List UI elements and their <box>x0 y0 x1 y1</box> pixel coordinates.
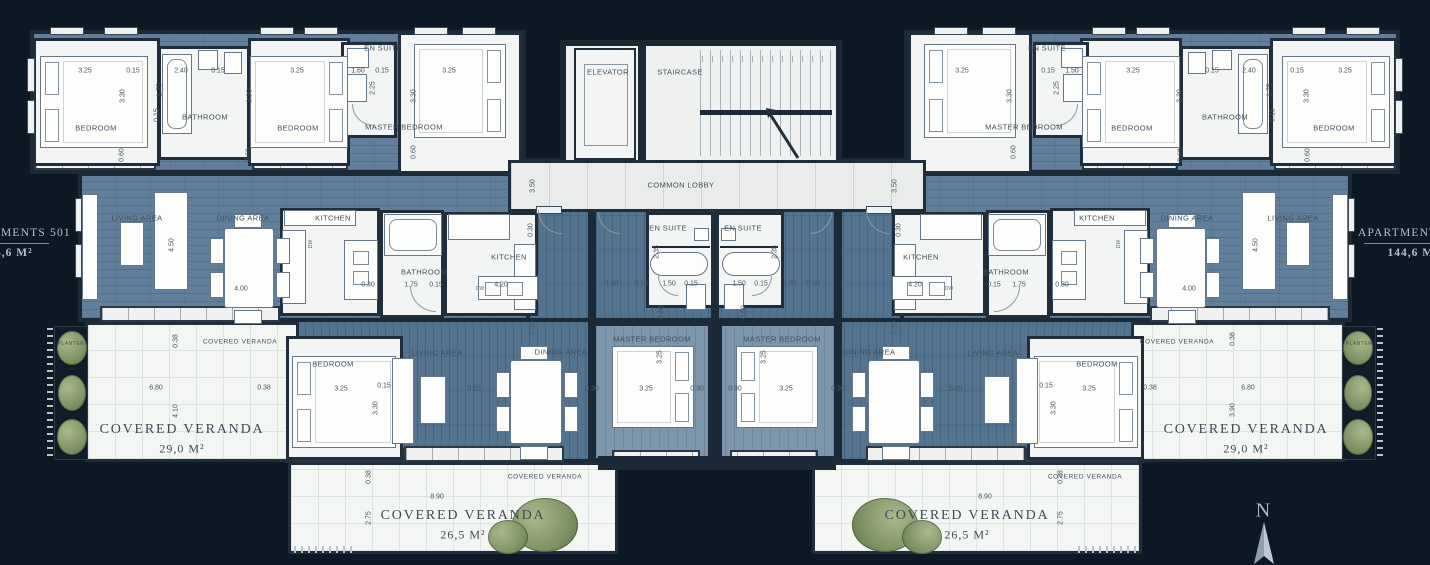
dim-label: 0.30 <box>528 223 535 237</box>
apartment-name: APARTMENTS 501 <box>0 227 55 239</box>
room-label: KITCHEN <box>315 214 351 223</box>
room-label: LIVING AREA <box>111 214 162 223</box>
dim-label: 0.30 <box>831 386 845 393</box>
room-label: MASTER BEDROOM <box>743 335 821 344</box>
apartment-label-right: APARTMENTS 501 144,6 M² <box>1358 227 1430 259</box>
dim-label: 0.60 <box>119 148 126 162</box>
room-label: COVERED VERANDA <box>1140 339 1214 346</box>
area-label: 29,0 M² <box>1223 442 1268 457</box>
dim-label: 2.25 <box>1054 81 1061 95</box>
dim-label: 1.50 <box>732 281 746 288</box>
dim-label: 5.85 <box>949 386 963 393</box>
dim-label: 0.30 <box>585 386 599 393</box>
dim-label: 3.25 <box>779 386 793 393</box>
dim-label: 2.35 <box>654 245 661 259</box>
appliance-label: DW <box>476 286 484 292</box>
dim-label: 0.38 <box>366 470 373 484</box>
veranda-title: COVERED VERANDA <box>885 508 1050 524</box>
dim-label: 6.80 <box>1241 385 1255 392</box>
room-label: BEDROOM <box>277 124 319 133</box>
dim-label: 3.25 <box>657 350 664 364</box>
dim-label: 2.40 <box>174 68 188 75</box>
north-label: N <box>1256 500 1270 523</box>
appliance-label: DW <box>1116 240 1122 248</box>
dim-label: 1.80 <box>783 281 797 288</box>
dim-label: 0.15 <box>377 383 391 390</box>
dim-label: 3.25 <box>639 386 653 393</box>
dim-label: 3.30 <box>247 89 254 103</box>
room-label: DINING AREA <box>535 348 588 357</box>
room-label: KITCHEN <box>1079 214 1115 223</box>
dim-label: 0.15 <box>1039 383 1053 390</box>
dim-label: 0.15 <box>154 108 161 122</box>
room-label: EN SUITE <box>1028 44 1066 53</box>
dim-label: 3.25 <box>290 68 304 75</box>
dim-label: 0.30 <box>690 386 704 393</box>
dim-label: 0.15 <box>375 68 389 75</box>
apartment-area: 144,6 M² <box>1358 247 1430 259</box>
room-label: LIVING AREA <box>1267 214 1318 223</box>
dim-label: 1.50 <box>662 281 676 288</box>
room-label: MASTER BEDROOM <box>613 335 691 344</box>
planter-label: PLANTER <box>1346 341 1373 347</box>
room-label: ELEVATOR <box>587 68 629 77</box>
room-label: BEDROOM <box>1076 360 1118 369</box>
dim-label: 3.30 <box>120 89 127 103</box>
dim-label: 1.75 <box>157 83 164 97</box>
dim-label: 4.00 <box>234 286 248 293</box>
room-label: EN SUITE <box>724 224 762 233</box>
dim-label: 4.20 <box>494 282 508 289</box>
dim-label: 3.30 <box>1304 89 1311 103</box>
room-label: BATHROOM <box>983 268 1029 277</box>
dim-label: 0.15 <box>987 282 1001 289</box>
room-label: MASTER BEDROOM <box>985 123 1063 132</box>
veranda-title: COVERED VERANDA <box>100 422 265 438</box>
dim-label: 3.25 <box>761 350 768 364</box>
dim-label: 3.30 <box>1007 89 1014 103</box>
room-label: LIVING AREA <box>967 349 1018 358</box>
dim-label: 4.20 <box>908 282 922 289</box>
divider-line <box>0 243 49 244</box>
room-label: COVERED VERANDA <box>203 339 277 346</box>
dim-label: 0.15 <box>1041 68 1055 75</box>
area-label: 26,5 M² <box>944 528 989 543</box>
apartment-name: APARTMENTS 501 <box>1358 227 1430 239</box>
dim-label: 0.38 <box>173 334 180 348</box>
dim-label: 1.60 <box>605 281 619 288</box>
dim-label: 0.30 <box>1055 282 1069 289</box>
room-label: BEDROOM <box>312 360 354 369</box>
dim-label: 0.38 <box>1058 470 1065 484</box>
room-label: DINING AREA <box>217 214 270 223</box>
room-label: LIVING AREA <box>411 349 462 358</box>
veranda-title: COVERED VERANDA <box>1164 422 1329 438</box>
dim-label: 4.50 <box>1253 238 1260 252</box>
dim-label: 0.15 <box>211 68 225 75</box>
room-label: COMMON LOBBY <box>648 181 715 190</box>
dim-label: 3.50 <box>892 179 899 193</box>
dim-label: 1.75 <box>404 282 418 289</box>
room-label: KITCHEN <box>903 253 939 262</box>
dim-label: 2.35 <box>772 245 779 259</box>
room-label: BEDROOM <box>1111 124 1153 133</box>
dim-label: 0.38 <box>1143 385 1157 392</box>
dim-label: 0.60 <box>246 148 253 162</box>
dim-label: 3.30 <box>1177 89 1184 103</box>
dim-label: 1.50 <box>1065 68 1079 75</box>
dim-label: 3.30 <box>1051 401 1058 415</box>
dim-label: 2.75 <box>1058 511 1065 525</box>
room-label: KITCHEN <box>491 253 527 262</box>
dim-label: 8.90 <box>978 494 992 501</box>
dim-label: 3.25 <box>1126 68 1140 75</box>
room-label: DINING AREA <box>1161 214 1214 223</box>
dim-label: 0.60 <box>1178 148 1185 162</box>
area-label: 26,5 M² <box>440 528 485 543</box>
room-label: EN SUITE <box>649 224 687 233</box>
dim-label: 4.10 <box>173 404 180 418</box>
dim-label: 8.90 <box>430 494 444 501</box>
room-label: BATHROOM <box>182 113 228 122</box>
room-label: MASTER BEDROOM <box>365 123 443 132</box>
apartment-area: 144,6 M² <box>0 247 55 259</box>
dim-label: 2.75 <box>366 511 373 525</box>
dim-label: 3.25 <box>1338 68 1352 75</box>
dim-label: 0.15 <box>634 281 648 288</box>
room-label: COVERED VERANDA <box>508 474 582 481</box>
dim-label: 3.25 <box>334 386 348 393</box>
dim-label: 0.15 <box>1205 68 1219 75</box>
dim-label: 3.50 <box>530 179 537 193</box>
dim-label: 2.40 <box>1242 68 1256 75</box>
dim-label: 3.25 <box>442 68 456 75</box>
dim-label: 0.15 <box>1290 68 1304 75</box>
dim-label: 0.30 <box>806 281 820 288</box>
dim-label: 2.25 <box>370 81 377 95</box>
dim-label: 3.30 <box>373 401 380 415</box>
divider-line <box>1364 243 1430 244</box>
dim-label: 0.38 <box>257 385 271 392</box>
appliance-label: DW <box>945 286 953 292</box>
dim-label: 0.15 <box>1270 108 1277 122</box>
area-label: 29,0 M² <box>159 442 204 457</box>
dim-label: 4.50 <box>169 238 176 252</box>
annotation-layer: 3.250.152.400.153.251.600.153.251.753.30… <box>0 0 1430 565</box>
dim-label: 6.80 <box>149 385 163 392</box>
appliance-label: DW <box>308 240 314 248</box>
dim-label: 0.15 <box>126 68 140 75</box>
dim-label: 0.38 <box>1230 332 1237 346</box>
dim-label: 5.85 <box>467 386 481 393</box>
dim-label: 0.60 <box>1305 148 1312 162</box>
dim-label: 0.60 <box>741 305 748 319</box>
dim-label: 7.20 <box>530 321 537 335</box>
dim-label: 0.60 <box>659 305 666 319</box>
room-label: BEDROOM <box>1313 124 1355 133</box>
dim-label: 4.00 <box>1182 286 1196 293</box>
room-label: STAIRCASE <box>657 68 703 77</box>
dim-label: 0.30 <box>728 386 742 393</box>
veranda-title: COVERED VERANDA <box>381 508 546 524</box>
room-label: BEDROOM <box>75 124 117 133</box>
dim-label: 1.75 <box>1012 282 1026 289</box>
room-label: BATHROOM <box>401 268 447 277</box>
room-label: EN SUITE <box>364 44 402 53</box>
north-arrow-icon <box>1248 522 1280 565</box>
dim-label: 7.20 <box>892 321 899 335</box>
room-label: BATHROOM <box>1202 113 1248 122</box>
dim-label: 3.30 <box>411 89 418 103</box>
dim-label: 0.15 <box>429 282 443 289</box>
dim-label: 0.30 <box>361 282 375 289</box>
planter-label: PLANTER <box>58 341 85 347</box>
dim-label: 1.75 <box>1267 83 1274 97</box>
dim-label: 0.60 <box>1011 145 1018 159</box>
floor-plan: 3.250.152.400.153.251.600.153.251.753.30… <box>0 0 1430 565</box>
dim-label: 3.90 <box>1230 403 1237 417</box>
room-label: DINING AREA <box>843 348 896 357</box>
dim-label: 3.25 <box>1082 386 1096 393</box>
dim-label: 0.60 <box>411 145 418 159</box>
dim-label: 3.25 <box>78 68 92 75</box>
dim-label: 0.15 <box>754 281 768 288</box>
dim-label: 0.30 <box>896 223 903 237</box>
dim-label: 0.15 <box>684 281 698 288</box>
apartment-label-left: APARTMENTS 501 144,6 M² <box>0 227 55 259</box>
dim-label: 1.60 <box>351 68 365 75</box>
dim-label: 3.25 <box>955 68 969 75</box>
